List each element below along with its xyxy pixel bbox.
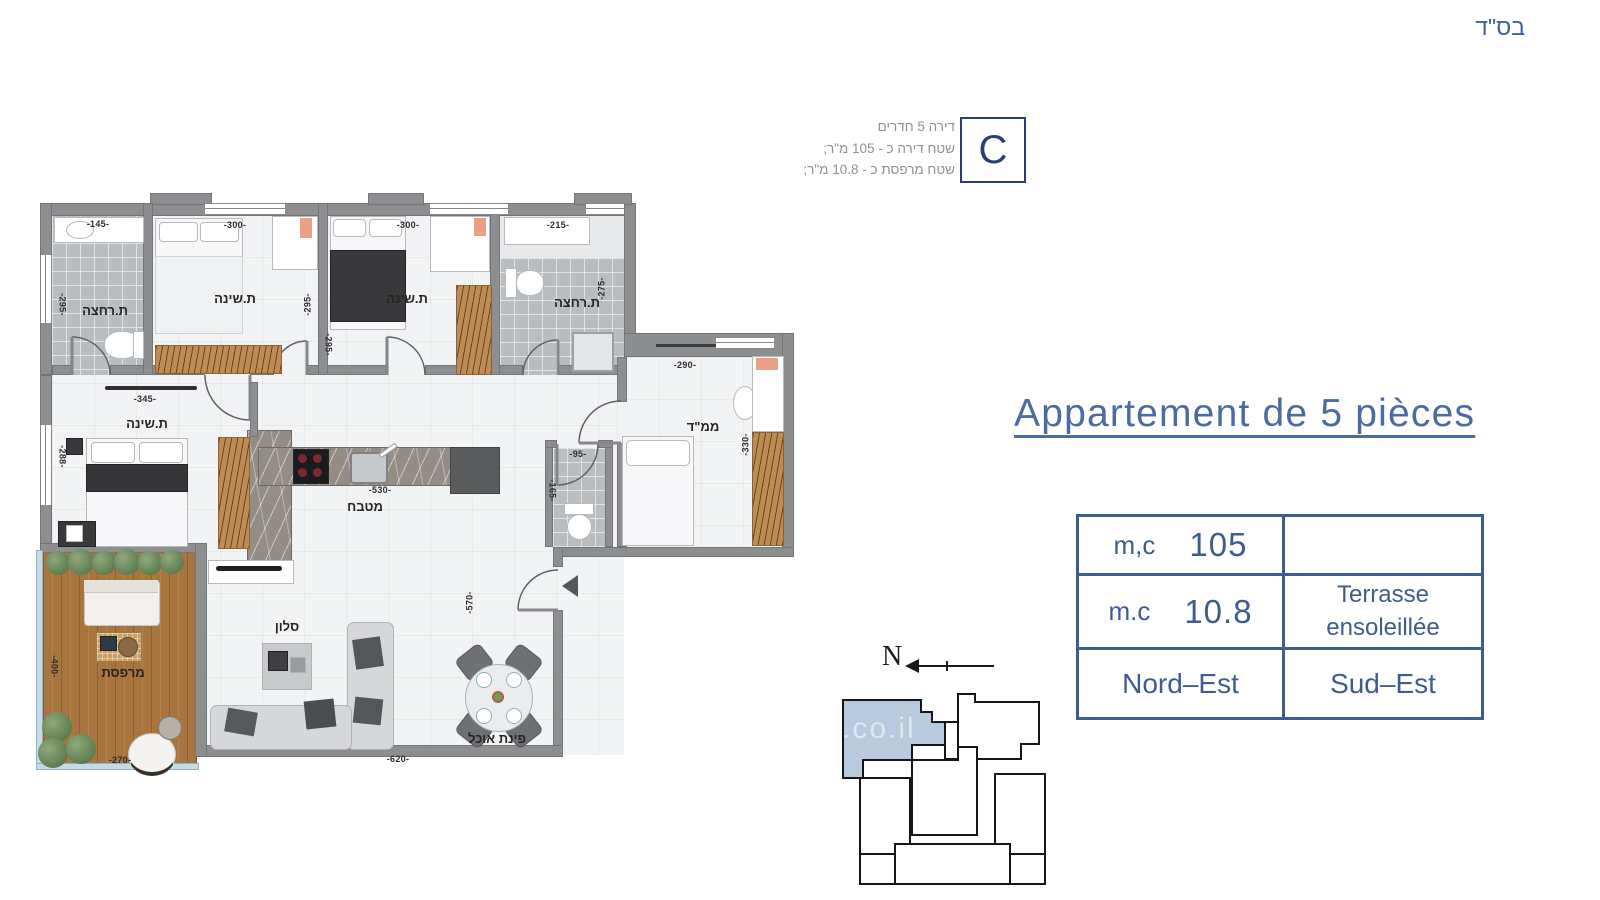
toilet [567, 514, 592, 540]
pillow [159, 222, 198, 242]
building-key-plan: .co.il [818, 684, 1050, 894]
nightstand [66, 438, 83, 455]
pillow [626, 440, 690, 466]
keyplan-block [860, 778, 910, 854]
dim-safe-room-w: -290- [665, 361, 705, 370]
pillow [91, 442, 135, 463]
plant [66, 734, 96, 764]
spec-cell-empty [1282, 517, 1481, 573]
keyplan-block [995, 774, 1045, 854]
unit-info-line2: שטח דירה כ - 105 מ"ר; [735, 138, 955, 160]
plant [42, 712, 72, 742]
plate [476, 672, 492, 688]
plant [38, 738, 68, 768]
plate [506, 708, 522, 724]
room-label-safe-room: ממ"ד [668, 420, 738, 433]
duvet-band [86, 464, 188, 492]
pillow [139, 442, 183, 463]
terrace-line1: Terrasse [1337, 581, 1429, 608]
shower [572, 332, 614, 372]
sofa-cushion [352, 636, 384, 670]
dim-bathroom1-h: -295- [58, 285, 67, 325]
dresser-accent [474, 218, 486, 236]
room-label-bathroom1: ת.רחצה [70, 304, 140, 317]
dim-master-w: -345- [125, 395, 165, 404]
tv-console [208, 560, 294, 584]
plate [476, 708, 492, 724]
dim-living-h: -570- [466, 583, 475, 623]
toilet [516, 270, 544, 296]
pillow [333, 219, 366, 237]
duvet-dark [330, 250, 406, 322]
dim-bedroom1-w: -300- [215, 221, 255, 230]
keyplan-block [945, 722, 958, 759]
unit-info-block: דירה 5 חדרים שטח דירה כ - 105 מ"ר; שטח מ… [735, 116, 955, 181]
dim-wc-h: -165- [548, 471, 557, 511]
dim-wc-w: -95- [558, 450, 598, 459]
dim-bedroom1-h: -295- [304, 285, 313, 325]
room-label-balcony: מרפסת [88, 666, 158, 679]
keyplan-block [912, 747, 977, 835]
unit-letter-box: C [960, 117, 1026, 183]
tv [216, 566, 282, 571]
sofa-throw [304, 699, 337, 730]
vanity-accent [756, 358, 778, 370]
stool [66, 525, 83, 542]
spec-cell-orientation-left: Nord–Est [1079, 647, 1282, 717]
area-label: m,c [1114, 530, 1156, 561]
keyplan-block [860, 854, 895, 884]
unit-info-line3: שטח מרפסת כ - 10.8 מ"ר; [735, 159, 955, 181]
toilet-tank [505, 268, 517, 298]
dim-bedroom2-w: -300- [388, 221, 428, 230]
sofa-cushion [353, 697, 384, 726]
keyplan-block [1010, 854, 1045, 884]
unit-info-line1: דירה 5 חדרים [735, 116, 955, 138]
room-label-kitchen: מטבח [330, 500, 400, 513]
dim-balcony-h: -400- [50, 647, 59, 687]
room-label-dining: פינת אוכל [462, 732, 532, 745]
terrace-area-label: m.c [1108, 596, 1150, 627]
keyplan-watermark: .co.il [842, 712, 916, 745]
wardrobe [752, 432, 784, 546]
north-arrow-tick [946, 661, 948, 671]
orientation-left: Nord–Est [1122, 668, 1239, 700]
terrace-line2: ensoleillée [1326, 614, 1439, 641]
plant [138, 551, 162, 575]
dim-bathroom2-w: -215- [538, 221, 578, 230]
side-table [158, 716, 182, 740]
spec-cell-terrace-area: m.c 10.8 [1079, 573, 1282, 647]
north-label: N [882, 641, 902, 673]
orientation-right: Sud–Est [1330, 668, 1436, 700]
wardrobe [155, 345, 282, 374]
dim-balcony-w: -270- [100, 756, 140, 765]
plant [114, 549, 140, 575]
toilet-tank [133, 331, 144, 359]
spec-cell-terrace: Terrasse ensoleillée [1282, 573, 1481, 647]
spec-table: m,c 105 m.c 10.8 Terrasse ensoleillée No… [1076, 514, 1484, 720]
entry-arrow-icon [562, 575, 578, 597]
outdoor-table [100, 636, 117, 651]
room-label-bedroom1: ת.שינה [200, 292, 270, 305]
dim-living-w: -620- [378, 755, 418, 764]
centerpiece [492, 691, 504, 703]
plant [46, 551, 70, 575]
plant [160, 550, 184, 574]
spec-cell-orientation-right: Sud–Est [1282, 647, 1481, 717]
north-arrow-icon [905, 659, 919, 673]
dim-bathroom1-w: -145- [78, 220, 118, 229]
coffee-table [290, 657, 306, 673]
outdoor-sofa-back [84, 580, 158, 593]
dim-safe-room-h: -330- [742, 425, 751, 465]
terrace-area-value: 10.8 [1184, 593, 1252, 631]
wardrobe [218, 437, 250, 549]
room-label-bedroom2: ת.שינה [372, 292, 442, 305]
bsd-text: בס"ד [1430, 14, 1525, 41]
sofa-cushion [224, 708, 258, 737]
page-title: Appartement de 5 pièces [1014, 392, 1534, 436]
curtain-rail [105, 386, 197, 390]
page: ת.רחצה ת.שינה ת.שינה ת.רחצה ת.שינה ממ"ד … [0, 0, 1600, 900]
plant [92, 551, 116, 575]
room-label-living-room: סלון [252, 620, 322, 633]
room-label-master-bedroom: ת.שינה [112, 417, 182, 430]
plant [68, 549, 94, 575]
dim-master-h: -288- [58, 437, 67, 477]
keyplan-block [895, 844, 1010, 884]
unit-letter: C [979, 128, 1008, 173]
dresser-accent [300, 218, 312, 238]
area-value: 105 [1189, 526, 1247, 564]
outdoor-tray [118, 637, 138, 657]
coffee-table [268, 651, 288, 671]
dim-bedroom2-h: -295- [324, 325, 333, 365]
plate [506, 672, 522, 688]
floor-plan: ת.רחצה ת.שינה ת.שינה ת.רחצה ת.שינה ממ"ד … [0, 0, 820, 900]
north-arrow-line [914, 665, 994, 667]
dim-kitchen-w: -530- [360, 486, 400, 495]
dim-bathroom2-h: -275- [598, 269, 607, 309]
wardrobe [456, 285, 492, 375]
spec-cell-area: m,c 105 [1079, 517, 1282, 573]
